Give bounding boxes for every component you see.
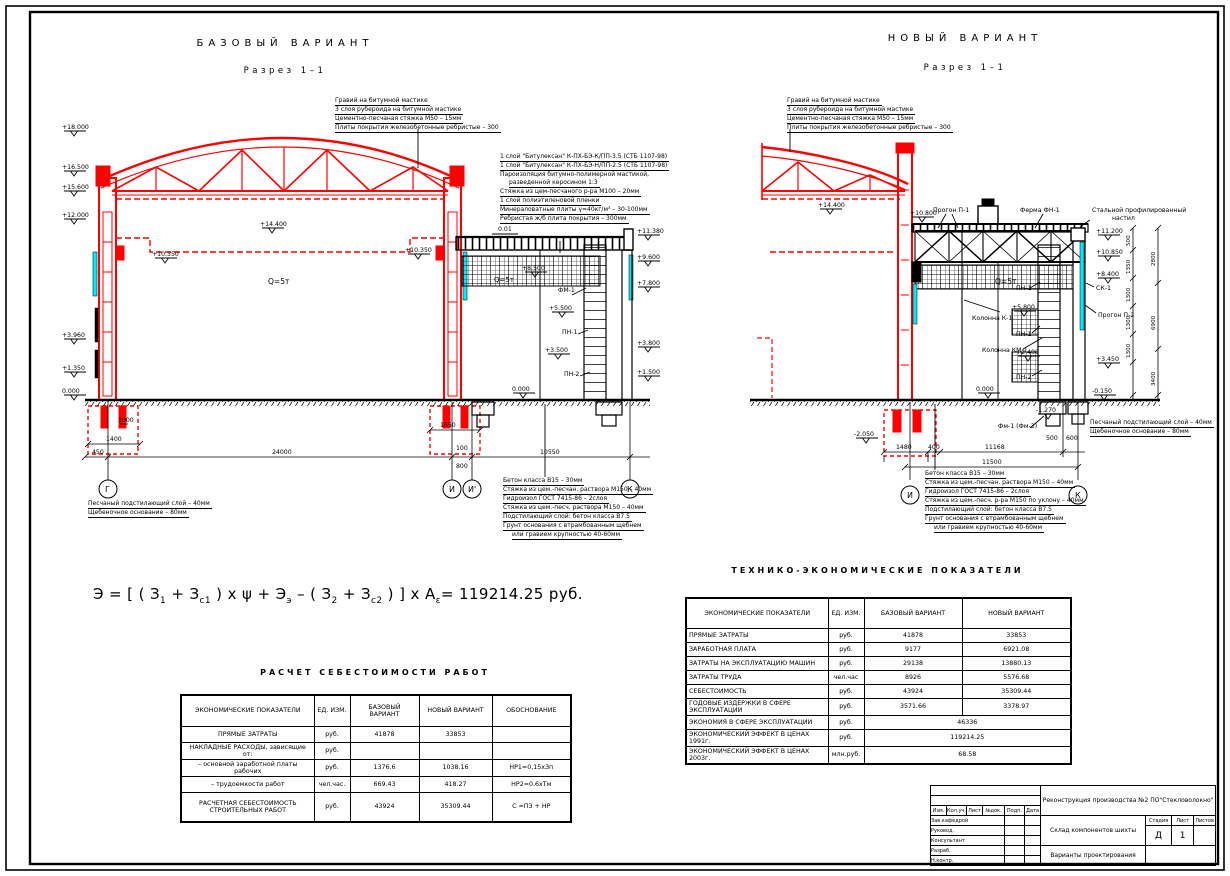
cell: НАКЛАДНЫЕ РАСХОДЫ, зависящие от: [181,742,314,759]
cell: – трудоемкости работ [181,776,314,792]
cell: руб. [314,759,350,776]
sig-field [1025,816,1041,826]
sig-header: Лист [967,806,983,816]
base-variant-title: БАЗОВЫЙ ВАРИАНТ [145,38,425,49]
table-row: ЗАТРАТЫ ТРУДА чел.час 8926 5576.68 [686,670,1071,684]
table-row: – трудоемкости работ чел.час. 669.43 418… [181,776,571,792]
svg-text:ПН-1: ПН-1 [1016,285,1032,292]
svg-text:+15.600: +15.600 [62,184,89,191]
cell: ЗАТРАТЫ ТРУДА [686,670,828,684]
note-line: Минераловатные плиты γ=40кг/м³ – 30-100м… [500,206,650,215]
svg-text:+12.000: +12.000 [62,212,89,219]
svg-text:+1.500: +1.500 [637,369,660,376]
sig-header: Изм. [931,806,947,816]
sig-role: Руковод. [931,826,1005,836]
cell: руб. [314,792,350,822]
table-row: ЗАРАБОТНАЯ ПЛАТА руб. 9177 6921.08 [686,642,1071,656]
note-line: Гидроизол ГОСТ 7415-86 – 2слоя [925,488,1031,497]
base-ground [85,400,650,406]
col-header: ОБОСНОВАНИЕ [492,695,571,726]
note-line: Стяжка из цем.-песч. раствора М150 – 40м… [503,504,646,513]
svg-text:И: И [449,485,455,494]
tep-table-title: ТЕХНИКО-ЭКОНОМИЧЕСКИЕ ПОКАЗАТЕЛИ [685,566,1070,575]
svg-text:450: 450 [92,449,104,456]
org-cell [1146,846,1216,866]
svg-text:Колонна КМ-1: Колонна КМ-1 [982,347,1028,354]
cell: 9177 [864,642,962,656]
stamp-cell [931,786,1041,796]
sig-field [1005,846,1025,856]
svg-text:И: И [907,491,913,500]
new-variant-subtitle: Разрез 1–1 [815,63,1115,73]
svg-text:1400: 1400 [106,436,122,443]
note-line: Плиты покрытия железобетонные ребристые … [787,124,953,133]
svg-text:1300: 1300 [1126,315,1132,330]
svg-text:+3.500: +3.500 [545,347,568,354]
svg-text:100: 100 [456,445,468,452]
svg-text:Г: Г [105,485,110,494]
cell: 29138 [864,656,962,670]
note-line: или гравием крупностью 40-60мм [512,531,622,540]
new-annex [912,199,1088,426]
sig-field [1025,826,1041,836]
note-line: Плиты покрытия железобетонные ребристые … [335,124,501,133]
note-line: Стяжка из цем.-песчан. раствора М150 – 4… [503,486,653,495]
svg-text:+14.400: +14.400 [260,221,287,228]
note-line: 1 слой "Битулексан" К-ПХ-БЭ-К/ПП-3.5 (СТ… [500,153,669,162]
tep-table: ЭКОНОМИЧЕСКИЕ ПОКАЗАТЕЛИ ЕД. ИЗМ. БАЗОВЫ… [685,597,1072,765]
note-line: 1 слой "Битулексан" К-ПХ-БЭ-Н/ПП-2.5 (СТ… [500,162,669,171]
cell: 43924 [350,792,419,822]
cell: 33853 [419,726,492,742]
table-row: ПРЯМЫЕ ЗАТРАТЫ руб. 41878 33853 [686,628,1071,642]
project-name: Реконструкция производства №2 ПО"Стеклов… [1041,786,1216,816]
table-row: ЭКОНОМИЯ В СФЕРЕ ЭКСПЛУАТАЦИИ руб. 46336 [686,715,1071,729]
svg-text:10550: 10550 [540,449,560,456]
cost-table: ЭКОНОМИЧЕСКИЕ ПОКАЗАТЕЛИ ЕД. ИЗМ. БАЗОВЫ… [180,694,572,823]
sig-field [1025,856,1041,866]
svg-text:Стальной профилированный: Стальной профилированный [1092,206,1186,214]
table-row: ПРЯМЫЕ ЗАТРАТЫ руб. 41878 33853 [181,726,571,742]
svg-text:-0.150: -0.150 [1092,388,1112,395]
col-header: ЭКОНОМИЧЕСКИЕ ПОКАЗАТЕЛИ [686,598,828,628]
table-row: ГОДОВЫЕ ИЗДЕРЖКИ В СФЕРЕ ЭКСПЛУАТАЦИИ ру… [686,698,1071,715]
cell: руб. [828,656,864,670]
cell [492,726,571,742]
table-row: ЭКОНОМИЧЕСКИЙ ЭФФЕКТ В ЦЕНАХ 1991г. руб.… [686,729,1071,746]
sig-header: Подп. [1005,806,1025,816]
svg-text:настил: настил [1112,215,1135,222]
base-ground-layers-note: Песчаный подстилающий слой – 40мм Щебено… [88,500,212,518]
cell: 5576.68 [962,670,1071,684]
base-dimensions [82,400,650,480]
cell: – основной заработной платы рабочих [181,759,314,776]
svg-text:800: 800 [456,463,468,470]
cell: ПРЯМЫЕ ЗАТРАТЫ [181,726,314,742]
note-line: Подстилающий слой: бетон класса В7.5 [925,506,1054,515]
cell: 669.43 [350,776,419,792]
sheet-label: Лист [1172,816,1194,826]
object-name: Склад компонентов шихты [1041,816,1146,846]
cell: чел.час [828,670,864,684]
svg-text:+5.800: +5.800 [1012,304,1035,311]
table-row: РАСЧЕТНАЯ СЕБЕСТОИМОСТЬ СТРОИТЕЛЬНЫХ РАБ… [181,792,571,822]
cell: ЭКОНОМИЧЕСКИЙ ЭФФЕКТ В ЦЕНАХ 2003г. [686,746,828,764]
cell: чел.час. [314,776,350,792]
svg-text:+3.800: +3.800 [637,340,660,347]
svg-text:ФМ-1: ФМ-1 [558,287,575,294]
stage-label: Стадия [1146,816,1172,826]
svg-text:1300: 1300 [1126,287,1132,302]
col-header: ЕД. ИЗМ. [828,598,864,628]
cell: 35309.44 [962,684,1071,698]
svg-text:6900: 6900 [1151,315,1157,330]
col-header: НОВЫЙ ВАРИАНТ [962,598,1071,628]
cell: 1376.6 [350,759,419,776]
cell: руб. [828,642,864,656]
note-line: Песчаный подстилающий слой – 40мм [88,500,212,509]
sig-header: Дата [1025,806,1041,816]
svg-text:+11.380: +11.380 [637,228,664,235]
svg-text:500: 500 [1126,235,1132,246]
note-line: или гравием крупностью 40-60мм [934,524,1044,533]
note-line: 3 слоя рубероида на битумной мастике [335,106,463,115]
new-section-drawing: +14.400 +10.800 +11.200 +10.850 +8.400 +… [750,129,1186,504]
cell: 41878 [350,726,419,742]
cell: ЗАРАБОТНАЯ ПЛАТА [686,642,828,656]
base-annex-roof-layers-note: 1 слой "Битулексан" К-ПХ-БЭ-К/ПП-3.5 (СТ… [500,153,669,224]
svg-text:+3.960: +3.960 [62,332,85,339]
svg-text:11168: 11168 [985,444,1005,451]
svg-text:11500: 11500 [982,459,1002,466]
svg-text:+1.350: +1.350 [62,365,85,372]
svg-text:И': И' [468,485,476,494]
cell: руб. [314,742,350,759]
new-elevation-marks [820,209,1120,443]
new-red-hall [757,143,936,456]
svg-text:+16.500: +16.500 [62,164,89,171]
new-floor-layers-note: Бетон класса В15 – 30мм Стяжка из цем.-п… [925,470,1086,533]
svg-text:Ферма ФН-1: Ферма ФН-1 [1020,207,1060,214]
note-line: Грунт основания с втрамбованным щебнем [925,515,1066,524]
col-header: ЕД. ИЗМ. [314,695,350,726]
base-roof-layers-note: Гравий на битумной мастике 3 слоя руберо… [335,97,501,133]
cell: ГОДОВЫЕ ИЗДЕРЖКИ В СФЕРЕ ЭКСПЛУАТАЦИИ [686,698,828,715]
note-line: Стяжка из цем-песчаного р-ра М100 – 20мм [500,188,641,197]
note-line: Стяжка из цем.-песч. р-ра М150 по уклону… [925,497,1086,506]
cell: ЗАТРАТЫ НА ЭКСПЛУАТАЦИЮ МАШИН [686,656,828,670]
svg-text:24000: 24000 [272,449,292,456]
svg-text:+3.450: +3.450 [1096,356,1119,363]
base-variant-subtitle: Разрез 1–1 [145,66,425,76]
note-line: Грунт основания с втрамбованным щебнем [503,522,644,531]
new-variant-title: НОВЫЙ ВАРИАНТ [815,33,1115,44]
cell: ЭКОНОМИЯ В СФЕРЕ ЭКСПЛУАТАЦИИ [686,715,828,729]
svg-text:+5.500: +5.500 [549,305,572,312]
doc-type: Варианты проектирования [1041,846,1146,866]
table-row: СЕБЕСТОИМОСТЬ руб. 43924 35309.44 [686,684,1071,698]
new-texts: +14.400 +10.800 +11.200 +10.850 +8.400 +… [818,202,1186,500]
sig-field [1005,816,1025,826]
cell [350,742,419,759]
sheet-value: 1 [1172,826,1194,846]
svg-text:+14.400: +14.400 [818,202,845,209]
note-line: Ребристая ж/б плита покрытия – 300мм [500,215,629,224]
sig-header: Кол.уч. [947,806,967,816]
svg-text:ПН-1: ПН-1 [1016,331,1032,338]
stamp-cell [931,796,1041,806]
stage-value: Д [1146,826,1172,846]
svg-text:Прогон П-1: Прогон П-1 [933,207,969,214]
svg-text:+18.000: +18.000 [62,124,89,131]
note-line: Бетон класса В15 – 30мм [925,470,1006,479]
new-roof-layers-note: Гравий на битумной мастике 3 слоя руберо… [787,97,953,133]
svg-text:1350: 1350 [1126,259,1132,274]
sig-field [1005,826,1025,836]
sheets-label: Листов [1194,816,1216,826]
svg-text:-1.270: -1.270 [1036,407,1056,414]
cell: руб. [828,698,864,715]
cell: 43924 [864,684,962,698]
note-line: Гидроизол ГОСТ 7415-86 – 2слоя [503,495,609,504]
cost-table-title: РАСЧЕТ СЕБЕСТОИМОСТИ РАБОТ [180,668,570,677]
svg-text:1300: 1300 [1126,343,1132,358]
svg-text:1650: 1650 [440,422,456,429]
svg-text:1480: 1480 [896,444,912,451]
cell: руб. [828,628,864,642]
svg-text:Фм-1 (Фм-3): Фм-1 (Фм-3) [998,423,1037,430]
cell: руб. [828,715,864,729]
cell [492,742,571,759]
cell: руб. [314,726,350,742]
note-line: 1 слой полиэтиленовой пленки [500,197,601,206]
cell: млн.руб. [828,746,864,764]
cell: 119214.25 [864,729,1071,746]
note-line: Щебеночное основание – 80мм [1090,428,1191,437]
svg-text:СК-1: СК-1 [1096,285,1111,292]
table-row: – основной заработной платы рабочих руб.… [181,759,571,776]
svg-text:600: 600 [1066,435,1078,442]
base-floor-layers-note: Бетон класса В15 – 30мм Стяжка из цем.-п… [503,477,653,540]
cell: 68.58 [864,746,1071,764]
svg-text:0.000: 0.000 [512,386,530,393]
note-line: 3 слоя рубероида на битумной мастике [787,106,915,115]
cell: 46336 [864,715,1071,729]
sig-role: Зав.кафедрой [931,816,1005,826]
note-line: Гравий на битумной мастике [335,97,430,106]
base-red-hall [88,138,480,454]
svg-text:0.01: 0.01 [498,226,512,233]
cell: 1038.16 [419,759,492,776]
svg-text:-2.050: -2.050 [854,431,874,438]
svg-text:Q=5т: Q=5т [494,276,514,284]
note-line: Бетон класса В15 – 30мм [503,477,584,486]
table-row: НАКЛАДНЫЕ РАСХОДЫ, зависящие от: руб. [181,742,571,759]
sig-role: Консультант [931,836,1005,846]
col-header: БАЗОВЫЙ ВАРИАНТ [350,695,419,726]
sheets-value [1194,826,1216,846]
cell: 8926 [864,670,962,684]
svg-text:ПН-1: ПН-1 [562,329,578,336]
sig-header: №док. [983,806,1005,816]
new-ground-layers-note: Песчаный подстилающий слой – 40мм Щебено… [1090,419,1214,437]
sig-field [1025,836,1041,846]
note-line: Щебеночное основание – 80мм [88,509,189,518]
svg-text:Q=5т: Q=5т [995,277,1017,286]
drawing-sheet: +18.000 +16.500 +15.600 +12.000 +3.960 +… [0,0,1230,876]
cell: НР2=0.6хТм [492,776,571,792]
note-line: Пароизоляция битумно-полимерной мастикой… [500,171,669,179]
new-ground [750,400,1160,406]
svg-text:0.000: 0.000 [976,386,994,393]
svg-text:+11.200: +11.200 [1096,228,1123,235]
svg-text:Колонна К-1: Колонна К-1 [972,315,1012,322]
note-line: Гравий на битумной мастике [787,97,882,106]
cell: ЭКОНОМИЧЕСКИЙ ЭФФЕКТ В ЦЕНАХ 1991г. [686,729,828,746]
cell: 13880.13 [962,656,1071,670]
sig-field [1005,856,1025,866]
note-line: Стяжка из цем.-песчан. раствора М150 – 4… [925,479,1075,488]
sig-field [1005,836,1025,846]
cell: 3378.97 [962,698,1071,715]
svg-text:+9.600: +9.600 [637,254,660,261]
svg-text:0.000: 0.000 [62,388,80,395]
svg-text:+10.350: +10.350 [152,251,179,258]
cell [419,742,492,759]
col-header: НОВЫЙ ВАРИАНТ [419,695,492,726]
cell: руб. [828,729,864,746]
cell: С =ПЗ + НР [492,792,571,822]
sig-role: Н.контр. [931,856,1005,866]
svg-text:3400: 3400 [1151,371,1157,386]
title-block: Реконструкция производства №2 ПО"Стеклов… [930,785,1215,866]
cell: 418.27 [419,776,492,792]
note-line: разведенной керосином 1:3 [509,179,600,188]
svg-text:Q=5т: Q=5т [268,277,290,286]
svg-text:500: 500 [1046,435,1058,442]
sig-field [1025,846,1041,856]
note-line: Подстилающий слой: бетон класса В7.5 [503,513,632,522]
table-row: ЭКОНОМИЧЕСКИЙ ЭФФЕКТ В ЦЕНАХ 2003г. млн.… [686,746,1071,764]
svg-text:400: 400 [928,444,940,451]
cell: НР1=0,15хЗп [492,759,571,776]
base-annex [456,229,633,427]
col-header: ЭКОНОМИЧЕСКИЕ ПОКАЗАТЕЛИ [181,695,314,726]
svg-text:+7.800: +7.800 [637,280,660,287]
svg-text:2800: 2800 [1151,251,1157,266]
cell: РАСЧЕТНАЯ СЕБЕСТОИМОСТЬ СТРОИТЕЛЬНЫХ РАБ… [181,792,314,822]
note-line: Цементно-песчаная стяжка М50 – 15мм [787,115,915,124]
cell: ПРЯМЫЕ ЗАТРАТЫ [686,628,828,642]
cell: 3571.66 [864,698,962,715]
cell: 33853 [962,628,1071,642]
table-row: ЗАТРАТЫ НА ЭКСПЛУАТАЦИЮ МАШИН руб. 29138… [686,656,1071,670]
note-line: Цементно-песчаная стяжка М50 – 15мм [335,115,463,124]
cell: 6921.08 [962,642,1071,656]
cell: 35309.44 [419,792,492,822]
svg-text:+8.400: +8.400 [1096,271,1119,278]
svg-text:+10.350: +10.350 [405,247,432,254]
cell: СЕБЕСТОИМОСТЬ [686,684,828,698]
cell: 41878 [864,628,962,642]
economic-effect-formula: Э = [ ( З1 + Зс1 ) x ψ + Ээ – ( З2 + Зс2… [93,585,583,606]
sig-role: Разраб. [931,846,1005,856]
svg-text:ПН-2: ПН-2 [1016,374,1032,381]
note-line: Песчаный подстилающий слой – 40мм [1090,419,1214,428]
svg-text:+10.850: +10.850 [1096,249,1123,256]
cell: руб. [828,684,864,698]
svg-text:ПН-2: ПН-2 [564,371,580,378]
svg-text:+8.500: +8.500 [522,265,545,272]
col-header: БАЗОВЫЙ ВАРИАНТ [864,598,962,628]
svg-text:1000: 1000 [118,417,134,424]
